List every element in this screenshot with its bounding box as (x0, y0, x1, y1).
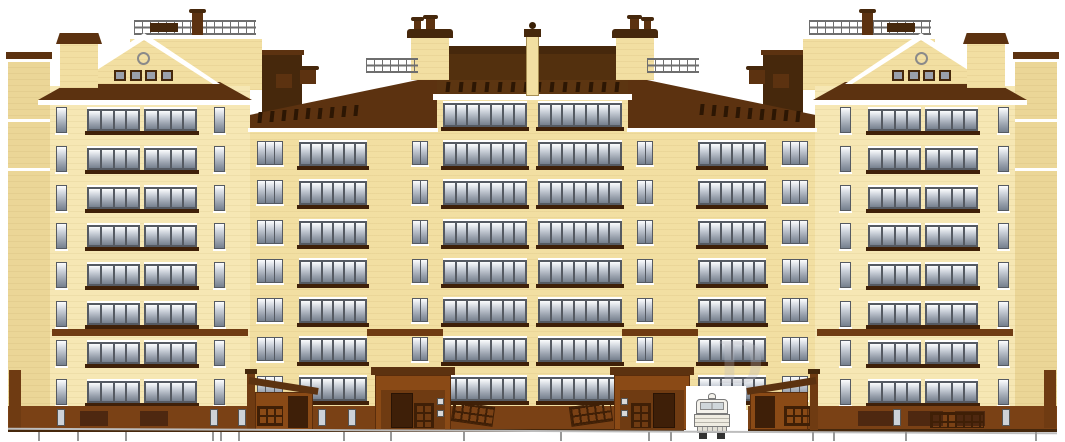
window-pane (184, 111, 195, 129)
window-pane (127, 344, 138, 362)
window-pane (275, 299, 282, 321)
basement-opening (348, 409, 356, 426)
window-pane (266, 181, 273, 203)
window-pane (146, 111, 157, 129)
window-pane (870, 305, 881, 323)
window-pane (610, 223, 620, 243)
window-pane (275, 142, 282, 164)
window-pane (800, 338, 807, 360)
window-pane (421, 181, 428, 203)
window-pane (215, 108, 224, 132)
survey-tick-mark (212, 432, 214, 441)
window-pane (744, 183, 753, 203)
window-pane (953, 266, 964, 284)
window-pane (711, 262, 720, 282)
balcony-slab (441, 284, 529, 288)
survey-tick-mark (220, 432, 222, 441)
window-pane (587, 223, 597, 243)
center-pier-window (412, 220, 428, 244)
window-pane (638, 142, 645, 164)
wing-balcony-band (299, 336, 367, 362)
window-pane (457, 340, 467, 360)
tower-balcony-band (144, 262, 197, 286)
window-pane (258, 299, 265, 321)
window-pane (480, 144, 490, 164)
window-pane (115, 344, 126, 362)
window-pane (312, 144, 321, 164)
window-pane (421, 221, 428, 243)
attic-window (925, 72, 933, 79)
window-pane (146, 227, 157, 245)
tower-balcony-band (868, 185, 921, 209)
window-pane (563, 183, 573, 203)
window-pane (965, 150, 976, 168)
window-pane (783, 142, 790, 164)
window-pane (783, 260, 790, 282)
window-pane (841, 302, 850, 326)
window-pane (492, 105, 502, 125)
window-pane (127, 111, 138, 129)
end-wall-string-course-right (1015, 119, 1057, 122)
balcony-slab (85, 286, 142, 290)
window-pane (258, 221, 265, 243)
tower-narrow-window (56, 107, 67, 133)
window-pane (999, 147, 1008, 171)
window-pane (301, 262, 310, 282)
window-pane (127, 227, 138, 245)
tower-balcony-band (925, 223, 978, 247)
window-pane (575, 379, 585, 399)
window-sill (213, 327, 226, 329)
tower-narrow-window (56, 185, 67, 211)
window-pane (172, 150, 183, 168)
tower-narrow-window (840, 301, 851, 327)
balcony-slab (85, 247, 142, 251)
porch-railing (631, 403, 651, 428)
window-pane (722, 183, 731, 203)
window-pane (57, 224, 66, 248)
window-pane (102, 227, 113, 245)
center-balcony-band (443, 101, 527, 127)
window-pane (870, 150, 881, 168)
window-pane (445, 301, 455, 321)
window-pane (575, 144, 585, 164)
window-sill (839, 172, 852, 174)
window-pane (646, 221, 653, 243)
tower-balcony-band (868, 262, 921, 286)
window-pane (599, 262, 609, 282)
window-pane (445, 105, 455, 125)
window-pane (159, 111, 170, 129)
balcony-slab (297, 245, 369, 249)
tower-narrow-window (56, 223, 67, 249)
window-pane (575, 223, 585, 243)
belt-course (622, 329, 698, 336)
window-pane (89, 150, 100, 168)
window-sill (997, 288, 1010, 290)
window-pane (146, 305, 157, 323)
window-pane (953, 305, 964, 323)
window-pane (552, 379, 562, 399)
center-balcony-band (538, 219, 622, 245)
window-pane (700, 144, 709, 164)
window-pane (755, 183, 764, 203)
entrance-door (391, 393, 413, 428)
window-pane (345, 379, 354, 399)
window-pane (587, 340, 597, 360)
survey-tick-mark (648, 432, 650, 441)
window-pane (468, 301, 478, 321)
end-wall-cornice-right (1015, 59, 1057, 62)
window-pane (492, 379, 502, 399)
window-pane (413, 299, 420, 321)
window-pane (927, 111, 938, 129)
window-pane (492, 340, 502, 360)
balcony-slab (866, 170, 923, 174)
window-pane (215, 224, 224, 248)
window-pane (599, 379, 609, 399)
tower-balcony-band (868, 301, 921, 325)
window-pane (783, 181, 790, 203)
balcony-slab (536, 323, 624, 327)
tower-narrow-window (56, 379, 67, 405)
window-sill (411, 283, 429, 285)
balcony-slab (85, 170, 142, 174)
window-pane (356, 183, 365, 203)
balcony-slab (142, 364, 199, 368)
basement-opening (238, 409, 246, 426)
window-pane (999, 108, 1008, 132)
window-pane (563, 301, 573, 321)
balcony-slab (923, 131, 980, 135)
window-pane (700, 262, 709, 282)
window-sill (55, 172, 68, 174)
window-pane (102, 344, 113, 362)
wing-balcony-band (299, 258, 367, 284)
window-pane (215, 302, 224, 326)
belt-course (52, 329, 248, 336)
window-pane (266, 299, 273, 321)
window-pane (480, 340, 490, 360)
window-pane (345, 223, 354, 243)
roof-bulkhead-cap (612, 29, 658, 38)
window-pane (711, 301, 720, 321)
truck-wheel (699, 433, 707, 439)
window-pane (127, 266, 138, 284)
window-pane (127, 305, 138, 323)
window-pane (599, 144, 609, 164)
window-pane (883, 111, 894, 129)
window-pane (323, 301, 332, 321)
center-pier-window (637, 337, 653, 361)
center-balcony-band (443, 179, 527, 205)
window-pane (783, 299, 790, 321)
window-sill (839, 288, 852, 290)
window-pane (599, 105, 609, 125)
window-pane (610, 144, 620, 164)
window-pane (445, 223, 455, 243)
window-pane (540, 379, 550, 399)
window-pane (870, 189, 881, 207)
window-pane (883, 189, 894, 207)
window-pane (587, 301, 597, 321)
window-pane (468, 262, 478, 282)
window-pane (927, 383, 938, 401)
window-sill (781, 361, 809, 363)
window-pane (575, 183, 585, 203)
entrance-porch-cap (371, 367, 455, 375)
bulkhead-chimney (426, 19, 435, 29)
window-sill (839, 366, 852, 368)
window-sill (411, 322, 429, 324)
tower-balcony-band (87, 185, 140, 209)
window-pane (275, 260, 282, 282)
ridge-pillar-cap (524, 29, 541, 37)
window-pane (504, 301, 514, 321)
window-pane (965, 344, 976, 362)
window-pane (89, 189, 100, 207)
center-balcony-band (443, 375, 527, 401)
window-pane (159, 150, 170, 168)
window-pane (57, 302, 66, 326)
window-pane (883, 266, 894, 284)
center-balcony-band (538, 101, 622, 127)
window-pane (733, 223, 742, 243)
window-pane (870, 227, 881, 245)
window-pane (540, 144, 550, 164)
tower-narrow-window (840, 185, 851, 211)
window-pane (89, 111, 100, 129)
center-balcony-band (538, 179, 622, 205)
tower-balcony-band (925, 185, 978, 209)
balcony-slab (441, 166, 529, 170)
window-pane (57, 380, 66, 404)
balcony-slab (142, 247, 199, 251)
window-pane (334, 262, 343, 282)
tower-balcony-band (868, 107, 921, 131)
window-pane (421, 299, 428, 321)
window-pane (57, 108, 66, 132)
window-pane (457, 262, 467, 282)
window-pane (700, 340, 709, 360)
wing-chimney (773, 74, 789, 88)
survey-tick-mark (1035, 432, 1037, 441)
tower-narrow-window (998, 340, 1009, 366)
window-pane (540, 183, 550, 203)
window-pane (638, 299, 645, 321)
survey-tick-mark (238, 432, 240, 441)
window-pane (965, 227, 976, 245)
window-pane (999, 380, 1008, 404)
window-pane (552, 144, 562, 164)
wing-triple-window (257, 259, 283, 283)
center-balcony-band (538, 375, 622, 401)
window-pane (722, 144, 731, 164)
window-sill (997, 327, 1010, 329)
tower-narrow-window (998, 262, 1009, 288)
window-pane (744, 144, 753, 164)
window-pane (504, 105, 514, 125)
intercom-panel (437, 410, 444, 417)
window-pane (468, 105, 478, 125)
window-pane (700, 183, 709, 203)
window-pane (722, 262, 731, 282)
window-pane (700, 301, 709, 321)
window-sill (636, 322, 654, 324)
truck-wheel (717, 433, 725, 439)
window-pane (445, 340, 455, 360)
roof-bulkhead-cap (407, 29, 453, 38)
window-pane (791, 338, 798, 360)
balcony-slab (536, 245, 624, 249)
window-pane (552, 223, 562, 243)
end-wall-string-course-left (8, 119, 50, 122)
tower-narrow-window (998, 223, 1009, 249)
window-pane (159, 305, 170, 323)
tower-balcony-band (144, 223, 197, 247)
window-pane (800, 142, 807, 164)
window-pane (115, 305, 126, 323)
entrance-porch-cap (610, 367, 694, 375)
window-pane (800, 260, 807, 282)
wing-triple-window (782, 180, 808, 204)
ridge-pillar (526, 36, 539, 96)
window-pane (733, 262, 742, 282)
window-pane (172, 344, 183, 362)
window-pane (610, 105, 620, 125)
window-pane (940, 150, 951, 168)
pediment-side-block (967, 42, 1005, 88)
balcony-slab (142, 286, 199, 290)
window-sill (55, 249, 68, 251)
tower-balcony-band (87, 340, 140, 364)
window-sill (213, 366, 226, 368)
wing-balcony-band (299, 297, 367, 323)
survey-tick-mark (463, 432, 465, 441)
attic-window (132, 72, 140, 79)
wing-triple-window (257, 180, 283, 204)
window-pane (587, 379, 597, 399)
window-pane (468, 144, 478, 164)
attic-window (941, 72, 949, 79)
window-pane (700, 223, 709, 243)
window-pane (413, 142, 420, 164)
window-pane (215, 147, 224, 171)
window-pane (57, 341, 66, 365)
window-pane (57, 186, 66, 210)
window-pane (146, 150, 157, 168)
window-pane (646, 338, 653, 360)
balcony-slab (85, 364, 142, 368)
window-pane (744, 262, 753, 282)
window-pane (791, 299, 798, 321)
wing-triple-window (257, 220, 283, 244)
window-sill (997, 249, 1010, 251)
bulkhead-chimney (644, 21, 651, 29)
window-pane (312, 301, 321, 321)
window-pane (457, 223, 467, 243)
window-pane (159, 344, 170, 362)
window-pane (733, 183, 742, 203)
window-pane (638, 260, 645, 282)
window-pane (345, 144, 354, 164)
window-pane (999, 302, 1008, 326)
core-chimney (862, 13, 873, 35)
tower-narrow-window (214, 107, 225, 133)
tower-narrow-window (214, 301, 225, 327)
window-pane (115, 227, 126, 245)
tower-narrow-window (998, 185, 1009, 211)
window-pane (102, 305, 113, 323)
window-pane (413, 221, 420, 243)
center-balcony-band (443, 297, 527, 323)
window-pane (552, 340, 562, 360)
intercom-panel (621, 410, 628, 417)
tower-narrow-window (840, 262, 851, 288)
window-pane (575, 105, 585, 125)
window-pane (940, 266, 951, 284)
balcony-slab (923, 247, 980, 251)
window-pane (146, 266, 157, 284)
wing-balcony-band (299, 219, 367, 245)
window-pane (610, 183, 620, 203)
window-pane (89, 266, 100, 284)
tower-balcony-band (144, 301, 197, 325)
wing-balcony-band (698, 297, 766, 323)
window-pane (172, 266, 183, 284)
window-sill (256, 361, 284, 363)
window-pane (552, 301, 562, 321)
window-sill (411, 244, 429, 246)
window-pane (445, 144, 455, 164)
basement-opening (57, 409, 65, 426)
window-pane (540, 340, 550, 360)
window-sill (636, 361, 654, 363)
wing-balcony-band (698, 219, 766, 245)
tower-narrow-window (56, 340, 67, 366)
window-pane (115, 189, 126, 207)
window-sill (636, 244, 654, 246)
window-pane (266, 142, 273, 164)
bulkhead-chimney (630, 19, 639, 29)
ridge-finial-ball (529, 22, 536, 29)
center-pier-window (637, 141, 653, 165)
window-pane (457, 379, 467, 399)
rear-roof-mass-cap (260, 50, 304, 55)
window-pane (258, 142, 265, 164)
center-pier-window (412, 180, 428, 204)
pediment-side-cap (963, 33, 1009, 44)
window-pane (275, 181, 282, 203)
survey-tick-mark (38, 432, 40, 441)
wing-chimney (749, 70, 765, 84)
window-pane (102, 189, 113, 207)
window-pane (480, 262, 490, 282)
window-pane (791, 221, 798, 243)
window-pane (599, 340, 609, 360)
window-pane (908, 344, 919, 362)
balcony-slab (441, 323, 529, 327)
wing-balcony-band (299, 140, 367, 166)
window-sill (55, 288, 68, 290)
balcony-slab (923, 325, 980, 329)
window-pane (883, 305, 894, 323)
window-pane (127, 189, 138, 207)
balcony-slab (536, 284, 624, 288)
window-pane (275, 338, 282, 360)
window-pane (711, 144, 720, 164)
window-pane (457, 183, 467, 203)
